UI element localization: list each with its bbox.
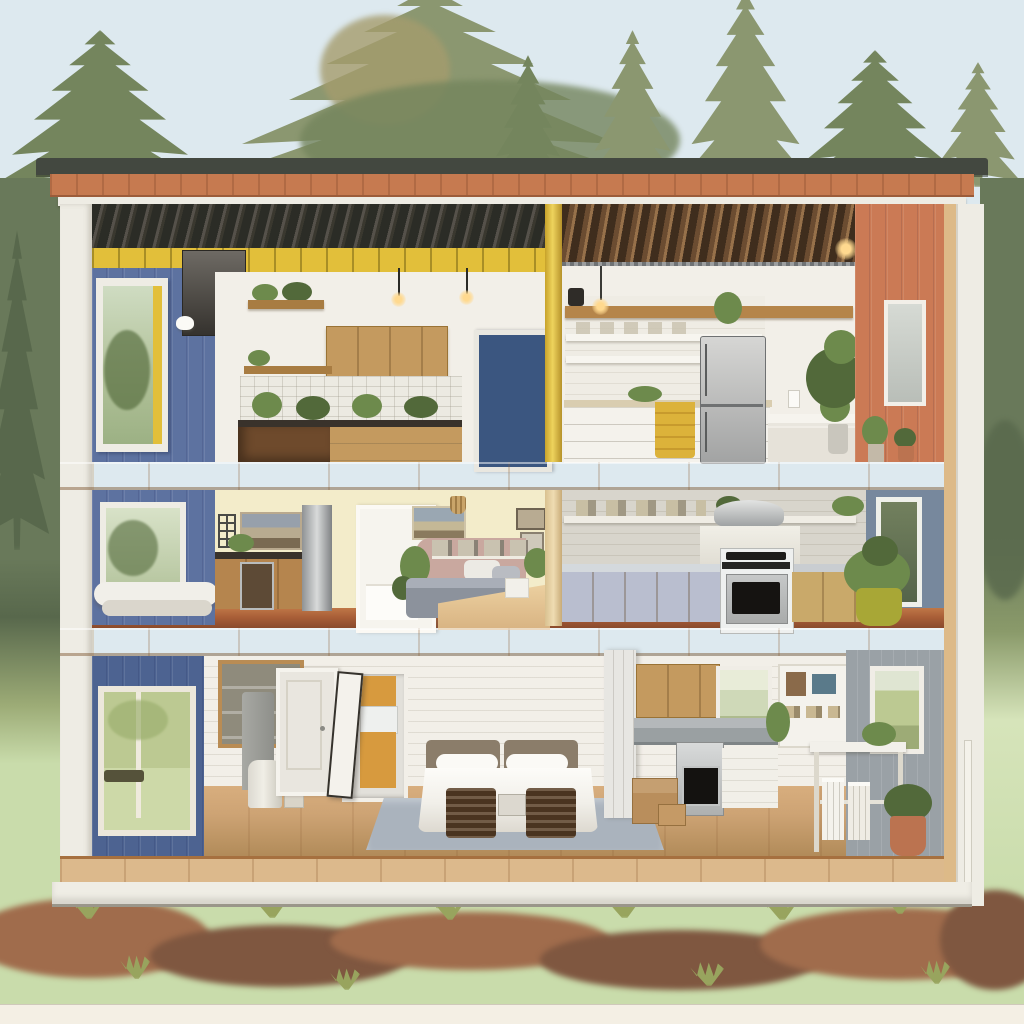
floor-plate-upper [60,462,944,490]
closed-door-knob [320,726,325,731]
wood-shelf-lower [244,366,332,374]
base-cabinet-oak [330,427,462,462]
hutch-plant [766,702,790,742]
closet-orange-upper [360,676,396,706]
blue-door [474,330,552,472]
hutch-shelf-items [784,706,840,718]
roof-cap [36,158,988,175]
terracotta-plant-top [894,428,916,448]
mid-left-window-tree [108,520,158,576]
shelf-plant-3 [248,350,270,366]
shelf-items-1 [576,322,696,334]
floor-plate-lower [60,628,944,656]
top-left-window-yellow-jamb [153,286,162,444]
wicker-pendant [450,496,466,514]
counter-plant-4 [404,396,438,418]
bench-left [446,788,496,838]
hutch-picture-1 [786,672,806,696]
closed-door-inset [286,680,322,770]
track-light-bulb-2 [459,290,474,305]
beam-canister [568,288,584,306]
chartreuse-plant-foliage-2 [862,536,898,566]
orange-wall-plant [862,416,888,446]
white-stool-2 [848,782,870,840]
track-light-bulb-1 [391,292,406,307]
house-cutaway-illustration [0,0,1024,1024]
deck-edge-band [60,856,944,885]
bottom-oven-window [682,766,720,806]
bottom-white-lower-cabinets [722,748,778,808]
orange-wall-window [884,300,926,406]
counter-plant-1 [252,392,282,418]
fridge-handle-top [705,344,707,396]
counter-plant-3 [352,394,382,418]
forest-backdrop-left [0,178,62,910]
light-switch [788,390,800,408]
orange-wall-plant-pot [868,444,884,462]
shelf-jars [576,500,706,516]
base-cabinet-dark [238,427,330,462]
wood-shelf-upper [248,300,324,309]
desk-leg-left [814,752,819,852]
yellow-towel [655,402,695,458]
foundation-band [52,882,972,907]
top-left-window-tree-view [104,330,150,410]
white-daybed-base [102,600,212,616]
oven-window [732,582,780,614]
fridge [700,336,766,464]
yellow-post [545,204,562,462]
corner-post-left [60,204,94,906]
fridge-split [701,404,763,407]
ceiling-light [835,238,857,260]
bench-right [526,788,576,838]
long-white-shelf [564,516,856,523]
closet-middle-shelf [360,706,398,734]
terracotta-pot-top [898,446,914,462]
downspout-pipe [964,740,972,886]
range-control-strip [726,552,786,560]
half-wall-shelf-frames [432,540,528,559]
glass-front-cabinet [240,562,274,610]
desk-top [810,742,906,752]
mid-divider-column [545,490,562,626]
side-table-white [505,578,529,598]
pendant-cord [600,266,602,300]
console-plant-pot [828,424,848,454]
hutch-picture-2 [812,674,836,694]
roof-fascia [50,174,974,197]
bedside-radio [498,794,526,816]
lavender-cabinets [562,572,722,622]
tall-plant-foliage-2 [824,330,858,364]
floor-plant-terracotta-pot [890,816,926,856]
window-view-log [104,770,144,782]
cardboard-box-small [658,804,686,826]
white-stool-1 [822,778,844,840]
fridge-handle-bottom [705,412,707,452]
plywood-edge-right [944,204,956,906]
hanging-plant [714,292,742,324]
range-cooktop [722,562,790,569]
chartreuse-pot [856,588,902,626]
mid-counter-plant [228,534,254,552]
small-frame-1 [516,508,546,530]
bottom-counter [634,718,778,745]
counter-top-left-loft [238,420,462,427]
wall-sconce [176,316,194,330]
mid-left-counter [215,552,313,559]
counter-greens [628,386,662,402]
mid-counter-left [562,564,722,572]
closet-orange-lower [360,732,396,788]
window-view-bush [108,700,168,740]
shelf-plant-right-1 [832,496,864,516]
foreground-bottom-strip [0,1004,1024,1024]
range-hood [714,500,784,526]
pendant-bulb [592,298,609,315]
desk-plant [862,722,896,746]
shelf-plant-2 [282,282,312,302]
steel-column [302,505,332,611]
counter-plant-2 [296,396,330,420]
bottom-oak-upper-cabinets [636,664,720,718]
